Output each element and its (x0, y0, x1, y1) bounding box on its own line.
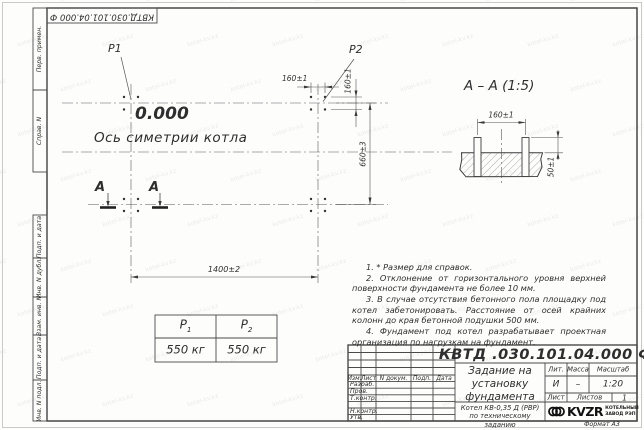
symmetry-axis-label: Ось симетрии котла (94, 132, 247, 146)
margin-label-podp-data-1: Подп. и дата (37, 215, 43, 257)
load-table-header-p2: P2 (241, 319, 253, 334)
col-podp: Подп. (413, 376, 431, 382)
col-ndocum: N докум. (380, 376, 408, 382)
section-view-title: А – А (1:5) (464, 80, 534, 94)
load-table-value-p2: 550 кг (227, 344, 266, 356)
sheets-header: Листов (577, 394, 602, 401)
notes-block: 1. * Размер для справок. 2. Отклонение о… (352, 262, 606, 347)
margin-label-podp-data-2: Подп. и дата (37, 336, 43, 378)
sheet-header: Лист (547, 394, 564, 401)
margin-label-sprav-n: Справ. N (37, 117, 43, 145)
col-data: Дата (436, 376, 452, 382)
note-2: 2. Отклонение от горизонтального уровня … (352, 273, 606, 294)
scale-header: Масштаб (597, 366, 629, 373)
title-block-title: Задание на установку фундамента (458, 365, 542, 403)
margin-label-inv-podl: Инв. N подл. (37, 380, 43, 421)
lit-value: И (553, 380, 560, 389)
load-table-header-p1: P1 (180, 319, 192, 334)
section-letter-right: А (149, 181, 159, 194)
load-table-value-p1: 550 кг (166, 344, 205, 356)
mass-value: – (576, 380, 581, 389)
dim-bolt-spacing-h: 160±1 (282, 75, 307, 83)
drawing-sheet: kotel-kv.kzkotel-kv.kzkotel-kv.kzkotel-k… (0, 0, 644, 430)
title-block-doc-number: КВТД .030.101.04.000 Ф (439, 347, 644, 362)
lit-header: Лит. (548, 366, 564, 373)
dim-length-1400: 1400±2 (208, 266, 240, 274)
section-dim-bolt-height: 50±1 (547, 157, 555, 178)
section-dim-bolt-spacing: 160±1 (488, 111, 513, 119)
elevation-mark: 0.000 (135, 106, 189, 123)
logo-tagline: КОТЕЛЬНЫЙЗАВОД РЭП (605, 406, 639, 417)
sheets-value: 1 (622, 394, 627, 402)
note-3: 3. В случае отсутствия бетонного пола пл… (352, 294, 606, 326)
dim-width-660: 660±3 (359, 141, 367, 166)
top-doc-number: КВТД.030.101.04.000 Ф (50, 11, 154, 20)
company-logo: KVZR КОТЕЛЬНЫЙЗАВОД РЭП (548, 404, 639, 419)
spring-coil-icon (548, 404, 565, 419)
scale-value: 1:20 (603, 380, 623, 389)
section-letter-left: А (95, 181, 105, 194)
format-label: Формат А3 (584, 422, 620, 428)
load-point-p1-label: P1 (108, 43, 122, 54)
row-utv: Утв. (350, 415, 363, 421)
note-4: 4. Фундамент под котел разрабатывает про… (352, 326, 606, 347)
dim-bolt-spacing-v: 160±1 (344, 68, 352, 93)
logo-name: KVZR (567, 404, 603, 419)
mass-header: Масса (567, 366, 589, 373)
title-block-product: Котел КВ-0,35 Д (РВР) по техническому за… (456, 404, 544, 429)
margin-label-inv-dubl: Инв. N дубл. (37, 257, 43, 298)
load-point-p2-label: P2 (349, 44, 363, 55)
row-tkontr: Т.контр. (350, 396, 377, 402)
margin-label-perv-primen: Перв. примен. (37, 26, 43, 72)
margin-label-vzam-inv: Взам. инв. N (37, 296, 43, 336)
note-1: 1. * Размер для справок. (352, 262, 606, 273)
